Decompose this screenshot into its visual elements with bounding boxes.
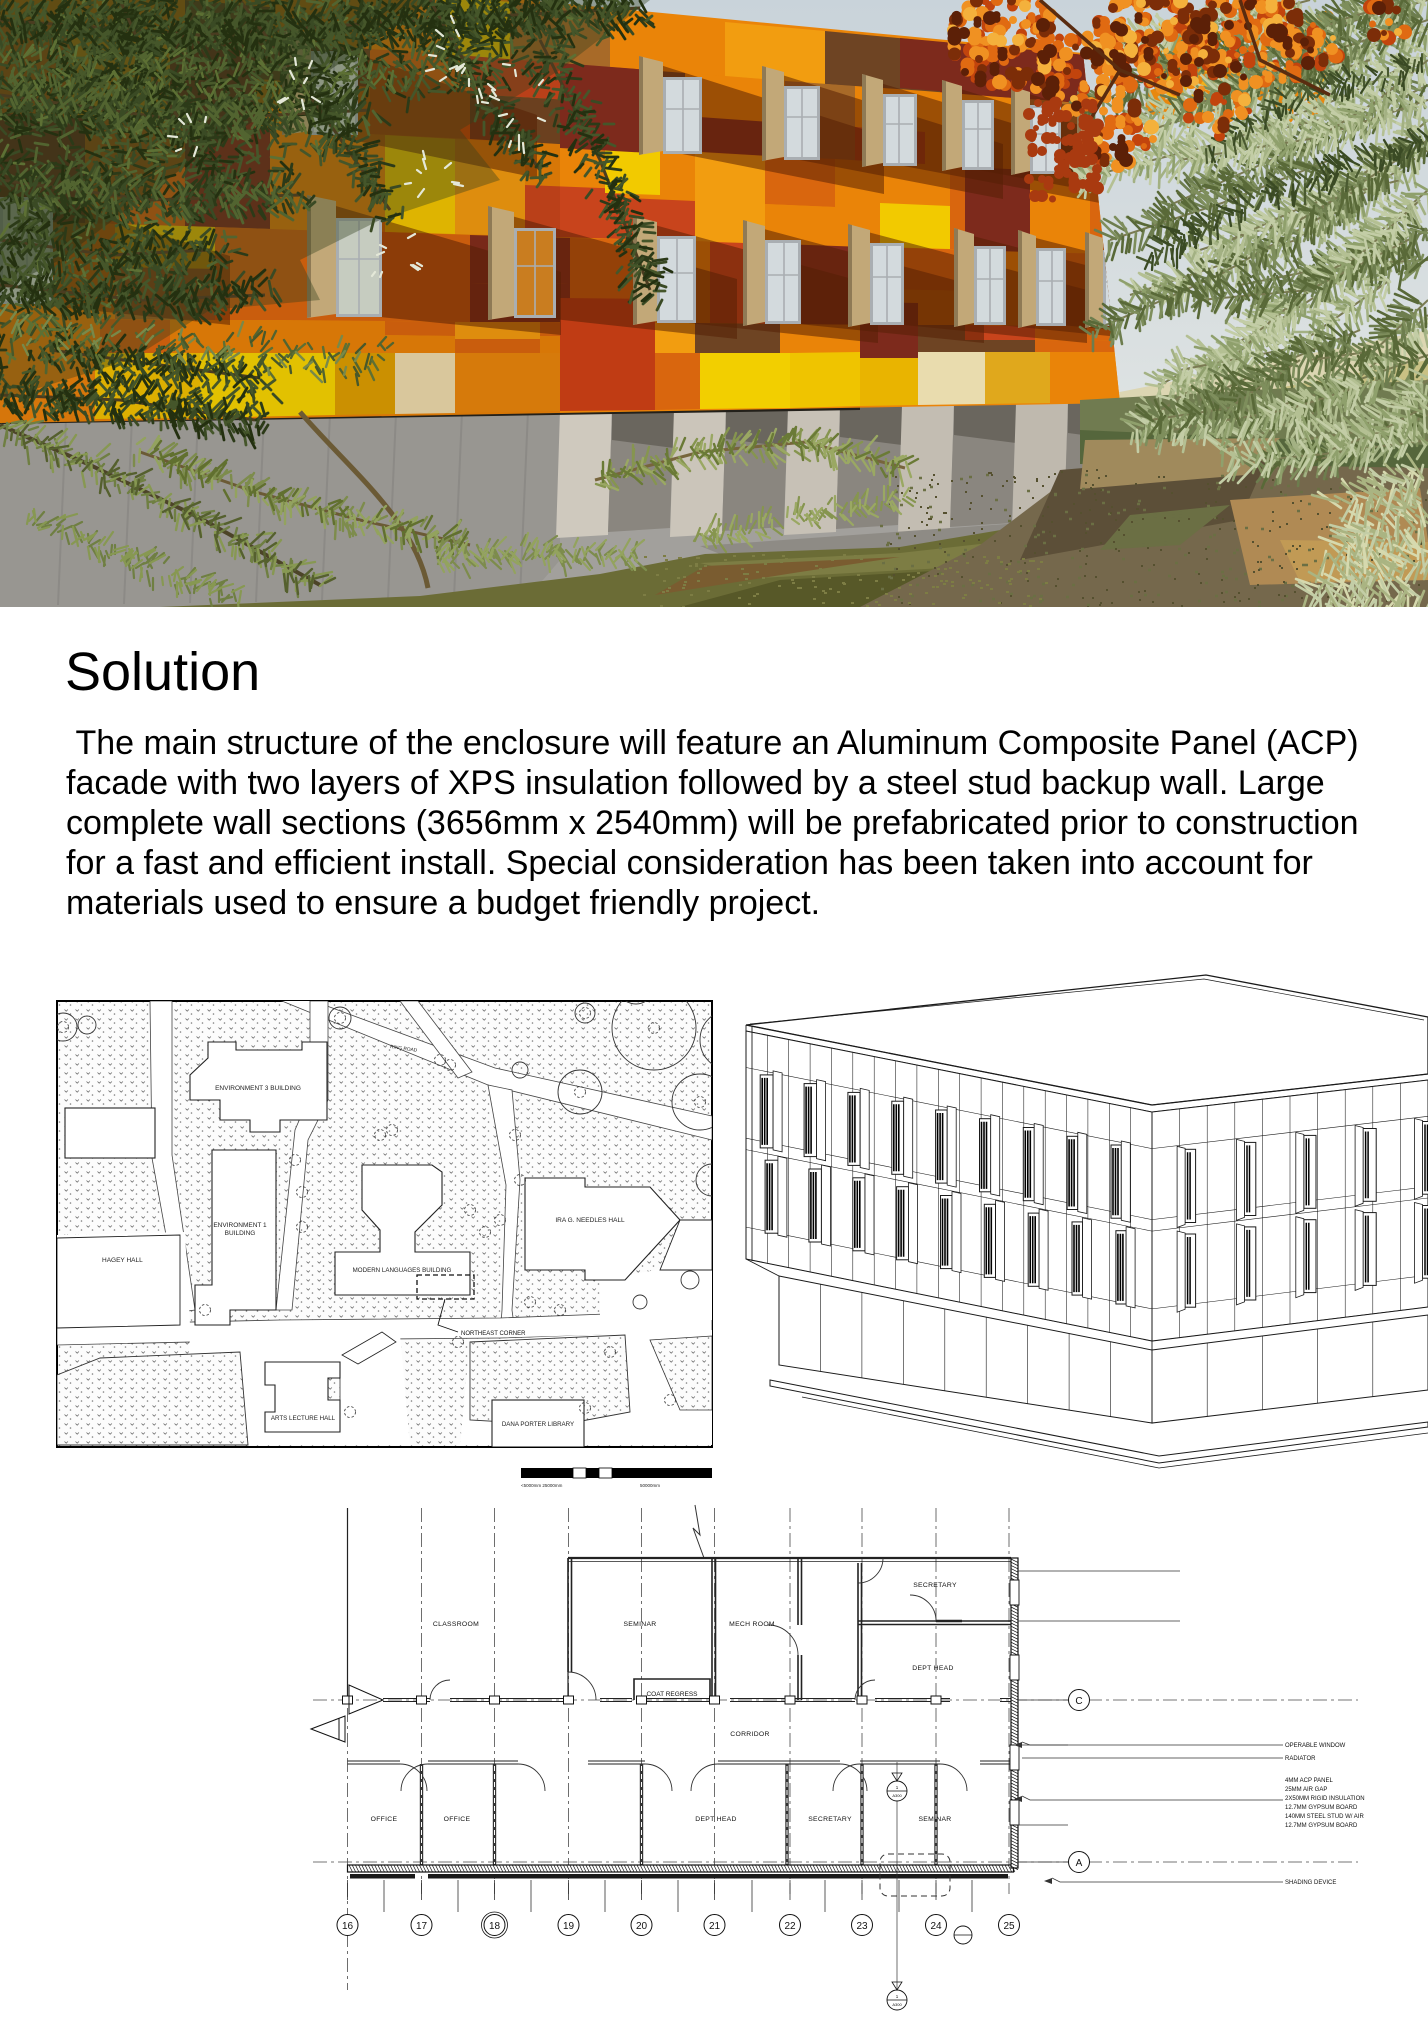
svg-text:18: 18 bbox=[489, 1921, 501, 1932]
svg-text:19: 19 bbox=[563, 1921, 575, 1932]
svg-text:MODERN LANGUAGES BUILDING: MODERN LANGUAGES BUILDING bbox=[353, 1267, 452, 1274]
svg-text:OFFICE: OFFICE bbox=[444, 1816, 471, 1823]
svg-text:IRA G. NEEDLES HALL: IRA G. NEEDLES HALL bbox=[555, 1217, 625, 1224]
svg-text:SEMINAR: SEMINAR bbox=[918, 1816, 951, 1823]
svg-text:25MM AIR GAP: 25MM AIR GAP bbox=[1285, 1787, 1327, 1793]
svg-text:140MM STEEL STUD W/ AIR: 140MM STEEL STUD W/ AIR bbox=[1285, 1814, 1364, 1820]
svg-text:RADIATOR: RADIATOR bbox=[1285, 1756, 1316, 1762]
svg-text:SECRETARY: SECRETARY bbox=[913, 1582, 957, 1589]
svg-text:21: 21 bbox=[709, 1921, 721, 1932]
svg-text:OFFICE: OFFICE bbox=[371, 1816, 398, 1823]
svg-text:DANA PORTER LIBRARY: DANA PORTER LIBRARY bbox=[502, 1421, 574, 1428]
svg-text:OPERABLE WINDOW: OPERABLE WINDOW bbox=[1285, 1743, 1346, 1749]
svg-text:12.7MM GYPSUM BOARD: 12.7MM GYPSUM BOARD bbox=[1285, 1823, 1358, 1829]
svg-text:A300: A300 bbox=[892, 1793, 902, 1798]
svg-text:24: 24 bbox=[930, 1921, 942, 1932]
svg-text:22: 22 bbox=[784, 1921, 796, 1932]
svg-text:BUILDING: BUILDING bbox=[225, 1230, 256, 1237]
svg-text:20: 20 bbox=[636, 1921, 648, 1932]
svg-text:ENVIRONMENT 1: ENVIRONMENT 1 bbox=[213, 1222, 267, 1229]
svg-text:NORTHEAST CORNER: NORTHEAST CORNER bbox=[461, 1331, 526, 1337]
svg-text:A: A bbox=[1076, 1858, 1083, 1869]
svg-text:17: 17 bbox=[416, 1921, 428, 1932]
svg-text:23: 23 bbox=[856, 1921, 868, 1932]
svg-text:12.7MM GYPSUM BOARD: 12.7MM GYPSUM BOARD bbox=[1285, 1805, 1358, 1811]
svg-text:<5000mm 25000mm: <5000mm 25000mm bbox=[521, 1483, 563, 1488]
svg-text:SECRETARY: SECRETARY bbox=[808, 1816, 852, 1823]
svg-text:2X50MM RIGID INSULATION: 2X50MM RIGID INSULATION bbox=[1285, 1796, 1365, 1802]
svg-text:MECH ROOM: MECH ROOM bbox=[729, 1621, 775, 1628]
svg-text:16: 16 bbox=[342, 1921, 354, 1932]
svg-text:HAGEY HALL: HAGEY HALL bbox=[102, 1257, 143, 1264]
svg-text:ENVIRONMENT 3 BUILDING: ENVIRONMENT 3 BUILDING bbox=[215, 1085, 301, 1092]
svg-text:COAT REGRESS: COAT REGRESS bbox=[646, 1691, 698, 1698]
svg-text:50000mm: 50000mm bbox=[640, 1483, 660, 1488]
svg-text:SEMINAR: SEMINAR bbox=[623, 1621, 656, 1628]
svg-text:25: 25 bbox=[1003, 1921, 1015, 1932]
svg-text:DEPT HEAD: DEPT HEAD bbox=[912, 1665, 953, 1672]
svg-text:SHADING DEVICE: SHADING DEVICE bbox=[1285, 1880, 1336, 1886]
svg-text:CORRIDOR: CORRIDOR bbox=[730, 1731, 769, 1738]
svg-text:ARTS LECTURE HALL: ARTS LECTURE HALL bbox=[271, 1415, 336, 1422]
svg-text:C: C bbox=[1075, 1696, 1082, 1707]
svg-text:4MM ACP PANEL: 4MM ACP PANEL bbox=[1285, 1778, 1333, 1784]
svg-text:CLASSROOM: CLASSROOM bbox=[433, 1621, 479, 1628]
svg-text:DEPT HEAD: DEPT HEAD bbox=[695, 1816, 736, 1823]
svg-text:A300: A300 bbox=[892, 2002, 902, 2007]
